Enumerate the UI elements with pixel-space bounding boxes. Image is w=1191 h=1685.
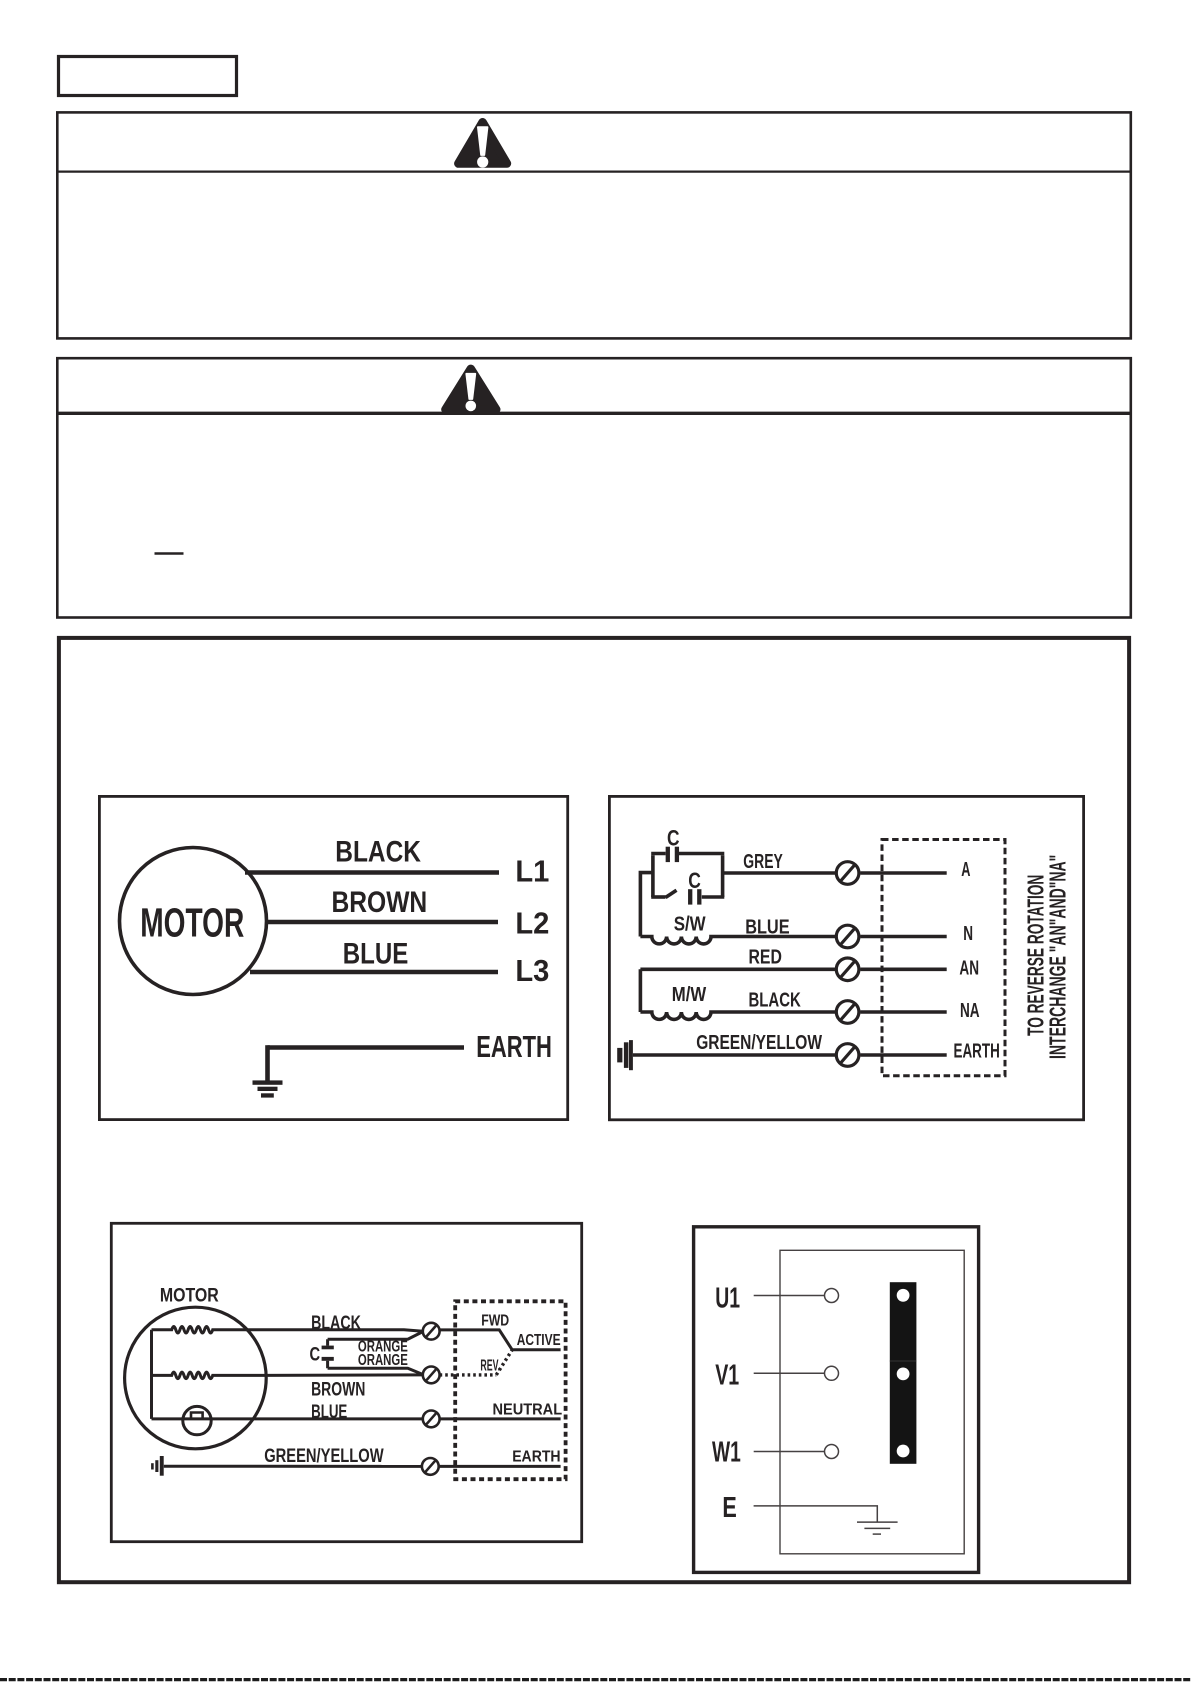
svg-text:REV.: REV.: [480, 1358, 500, 1375]
svg-text:BLACK: BLACK: [335, 836, 421, 869]
svg-text:NA: NA: [960, 1000, 980, 1022]
svg-text:AN: AN: [959, 958, 979, 980]
svg-text:ACTIVE: ACTIVE: [517, 1332, 561, 1349]
svg-text:M/W: M/W: [672, 984, 707, 1006]
svg-text:L3: L3: [515, 953, 549, 988]
svg-text:BLACK: BLACK: [749, 990, 801, 1012]
svg-text:ORANGE: ORANGE: [358, 1352, 408, 1369]
svg-text:EARTH: EARTH: [512, 1448, 560, 1465]
svg-text:NEUTRAL: NEUTRAL: [493, 1402, 563, 1419]
svg-text:C: C: [667, 826, 680, 851]
svg-text:A: A: [961, 859, 970, 881]
svg-text:U1: U1: [715, 1283, 740, 1315]
svg-text:BLUE: BLUE: [343, 938, 409, 971]
svg-text:BROWN: BROWN: [332, 886, 428, 919]
svg-text:BROWN: BROWN: [311, 1379, 365, 1401]
svg-text:V1: V1: [715, 1360, 739, 1392]
svg-text:E: E: [722, 1492, 736, 1524]
svg-text:BLACK: BLACK: [311, 1312, 361, 1334]
svg-text:GREY: GREY: [743, 851, 783, 873]
svg-text:GREEN/YELLOW: GREEN/YELLOW: [696, 1032, 822, 1054]
svg-text:MOTOR: MOTOR: [140, 900, 244, 946]
svg-text:S/W: S/W: [674, 914, 707, 936]
svg-text:EARTH: EARTH: [954, 1041, 1000, 1063]
svg-text:BLUE: BLUE: [311, 1401, 347, 1423]
svg-text:INTERCHANGE "AN"AND"NA": INTERCHANGE "AN"AND"NA": [1045, 855, 1071, 1059]
svg-text:L2: L2: [515, 905, 549, 940]
svg-text:W1: W1: [712, 1436, 741, 1468]
svg-text:EARTH: EARTH: [476, 1029, 552, 1064]
svg-text:GREEN/YELLOW: GREEN/YELLOW: [264, 1445, 384, 1467]
svg-text:FWD: FWD: [481, 1312, 509, 1329]
svg-text:N: N: [963, 923, 973, 945]
svg-text:RED: RED: [749, 946, 782, 968]
svg-text:C: C: [688, 868, 701, 893]
svg-text:MOTOR: MOTOR: [160, 1285, 219, 1307]
svg-text:L1: L1: [515, 854, 549, 889]
svg-text:C: C: [310, 1344, 321, 1366]
svg-text:BLUE: BLUE: [745, 917, 789, 939]
